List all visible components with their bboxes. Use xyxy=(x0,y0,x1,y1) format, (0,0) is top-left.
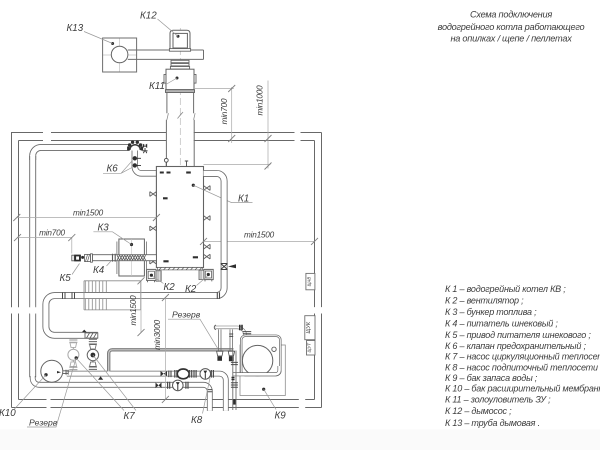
svg-text:К7: К7 xyxy=(124,411,136,422)
svg-text:К 10 – бак расширительный мем: К 10 – бак расширительный мембранный xyxy=(445,384,600,394)
svg-text:min1000: min1000 xyxy=(255,85,264,116)
svg-text:min700: min700 xyxy=(220,98,229,124)
svg-text:К 3 – бункер топлива ;: К 3 – бункер топлива ; xyxy=(445,307,537,317)
svg-text:min3000: min3000 xyxy=(153,319,162,350)
svg-text:Резерв: Резерв xyxy=(172,310,201,320)
svg-text:К 9 – бак запаса воды ;: К 9 – бак запаса воды ; xyxy=(445,373,538,383)
svg-text:К 12 – дымосос ;: К 12 – дымосос ; xyxy=(445,406,512,416)
svg-text:min1500: min1500 xyxy=(129,295,138,326)
svg-text:min700: min700 xyxy=(39,229,65,238)
svg-text:К11: К11 xyxy=(149,81,165,92)
svg-text:К4: К4 xyxy=(93,265,105,276)
svg-text:К 13 – труба дымовая .: К 13 – труба дымовая . xyxy=(445,418,540,428)
svg-text:К2: К2 xyxy=(164,282,176,293)
svg-text:Схема подключения: Схема подключения xyxy=(470,9,552,19)
svg-text:К 1 – водогрейный котел КВ ;: К 1 – водогрейный котел КВ ; xyxy=(445,284,566,294)
svg-text:К13: К13 xyxy=(67,23,84,34)
svg-text:К 11 – золоуловитель ЗУ ;: К 11 – золоуловитель ЗУ ; xyxy=(445,395,551,405)
svg-text:К10: К10 xyxy=(0,408,16,419)
svg-text:К 5 – привод питателя шнеков: К 5 – привод питателя шнекового ; xyxy=(445,330,591,340)
svg-text:ЩУК: ЩУК xyxy=(306,321,312,333)
svg-text:К6: К6 xyxy=(107,164,119,175)
svg-text:К 7 – насос циркуляционный т: К 7 – насос циркуляционный теплосети xyxy=(445,352,600,362)
svg-text:на опилках / щепе / пеллетах: на опилках / щепе / пеллетах xyxy=(450,34,572,44)
svg-text:К5: К5 xyxy=(60,273,72,284)
svg-text:К12: К12 xyxy=(140,11,157,22)
svg-text:К 6 – клапан предохранительн: К 6 – клапан предохранительный ; xyxy=(445,341,586,351)
svg-text:К 4 – питатель шнековый ;: К 4 – питатель шнековый ; xyxy=(445,319,558,329)
svg-text:Резерв: Резерв xyxy=(29,418,58,428)
svg-text:ЩУТ: ЩУТ xyxy=(307,343,312,353)
svg-text:К8: К8 xyxy=(191,415,203,426)
svg-text:min1500: min1500 xyxy=(73,209,104,218)
svg-text:ЩАВ: ЩАВ xyxy=(307,277,312,287)
svg-text:водогрейного котла работающего: водогрейного котла работающего xyxy=(438,22,585,32)
svg-text:К 2 – вентилятор ;: К 2 – вентилятор ; xyxy=(445,296,524,306)
svg-text:К9: К9 xyxy=(275,411,287,422)
svg-text:min1500: min1500 xyxy=(244,231,275,240)
svg-text:К 8 – насос подпиточный тепл: К 8 – насос подпиточный теплосети ; xyxy=(445,362,600,372)
